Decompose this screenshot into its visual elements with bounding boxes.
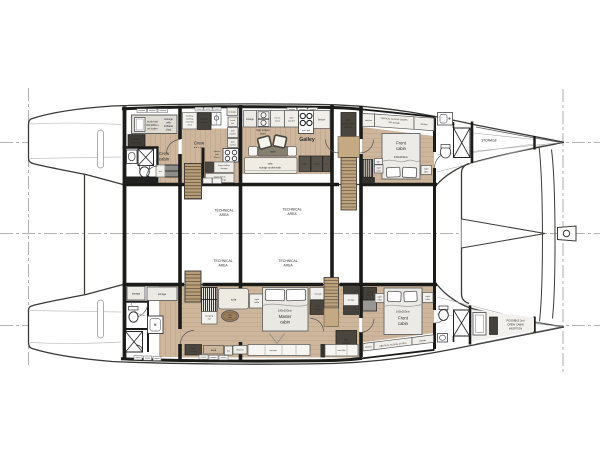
svg-text:AREA: AREA	[287, 212, 297, 216]
svg-text:chair: chair	[166, 128, 172, 132]
svg-text:storage: storage	[138, 180, 146, 183]
svg-text:cabin: cabin	[159, 157, 170, 162]
svg-text:worktop: worktop	[186, 115, 194, 118]
svg-text:storage: storage	[164, 117, 173, 121]
svg-text:shelves: shelves	[344, 127, 353, 129]
svg-text:night: night	[426, 295, 431, 298]
svg-text:sofa 90x: sofa 90x	[337, 350, 346, 352]
svg-text:Master: Master	[279, 314, 292, 319]
svg-text:electric: electric	[214, 150, 221, 153]
svg-text:night: night	[378, 296, 383, 299]
svg-text:bunk bed: bunk bed	[147, 120, 158, 124]
svg-text:storage: storage	[366, 291, 374, 294]
svg-text:night: night	[424, 168, 429, 171]
svg-text:dust: dust	[231, 141, 235, 144]
svg-text:cabin: cabin	[396, 146, 407, 151]
svg-text:4 burn.: 4 burn.	[214, 156, 221, 159]
svg-text:foldable: foldable	[164, 124, 174, 128]
svg-text:Crew: Crew	[159, 151, 170, 156]
svg-text:storage: storage	[348, 299, 356, 302]
svg-text:160x200cm: 160x200cm	[396, 310, 411, 314]
svg-text:Crew: Crew	[194, 141, 205, 146]
svg-text:STORAGE: STORAGE	[481, 139, 497, 143]
svg-text:washer: washer	[229, 133, 236, 136]
svg-text:stor.: stor.	[159, 170, 163, 173]
svg-text:storage: storage	[314, 308, 322, 311]
svg-text:60x190cm: 60x190cm	[131, 143, 142, 145]
svg-text:bar: bar	[227, 350, 230, 353]
svg-text:Galley: Galley	[299, 137, 315, 143]
svg-text:cabin: cabin	[398, 321, 409, 326]
svg-text:cabin: cabin	[280, 320, 291, 325]
svg-text:with: with	[166, 121, 171, 125]
svg-text:storage: storage	[269, 349, 277, 352]
svg-text:160x200cm: 160x200cm	[394, 155, 409, 159]
svg-text:night: night	[377, 167, 382, 170]
svg-text:lockers with: lockers with	[342, 123, 355, 126]
svg-text:storage: storage	[190, 350, 198, 353]
svg-text:hanging: hanging	[205, 316, 214, 318]
svg-text:POSSIBLE 2nd: POSSIBLE 2nd	[507, 319, 525, 323]
svg-text:storage: storage	[314, 293, 322, 296]
svg-text:high: high	[344, 340, 349, 342]
svg-text:table: table	[254, 301, 260, 304]
svg-text:shelves: shelves	[365, 120, 372, 122]
svg-text:bags clothes: bags clothes	[218, 164, 230, 167]
svg-text:store: store	[260, 132, 266, 135]
svg-text:lockers: lockers	[367, 295, 373, 297]
svg-text:Front: Front	[398, 316, 409, 321]
svg-text:wave: wave	[275, 121, 281, 123]
svg-text:machine: machine	[186, 122, 195, 124]
svg-text:freezer: freezer	[318, 119, 325, 122]
svg-text:top load: top load	[200, 118, 209, 121]
svg-text:table: table	[270, 150, 276, 154]
svg-text:light: light	[377, 161, 381, 164]
svg-text:TECHNICAL: TECHNICAL	[278, 259, 297, 263]
svg-text:AREA: AREA	[219, 213, 229, 217]
svg-text:storage underneath: storage underneath	[259, 167, 281, 170]
svg-text:180x200cm: 180x200cm	[278, 309, 293, 313]
svg-text:w/ locker: w/ locker	[147, 127, 157, 131]
svg-text:W/OPTION: W/OPTION	[509, 327, 522, 331]
svg-text:fridge: fridge	[302, 163, 308, 166]
svg-text:storage: storage	[221, 167, 229, 170]
svg-text:lockers: lockers	[315, 305, 323, 308]
svg-text:storage: storage	[158, 293, 167, 296]
svg-text:storage: storage	[246, 118, 254, 121]
svg-text:night: night	[254, 298, 259, 301]
svg-text:storage: storage	[132, 293, 141, 296]
svg-text:washer: washer	[201, 121, 208, 124]
svg-text:TECHNICAL: TECHNICAL	[213, 259, 232, 263]
svg-text:freezer: freezer	[313, 163, 320, 166]
svg-text:AREA: AREA	[283, 264, 293, 268]
svg-text:high: high	[346, 120, 351, 122]
svg-text:oven grill: oven grill	[302, 129, 311, 132]
svg-text:Front: Front	[396, 141, 407, 146]
svg-text:micro-: micro-	[274, 117, 280, 120]
svg-text:desk: desk	[211, 349, 217, 352]
svg-text:CREW CABIN: CREW CABIN	[507, 323, 524, 327]
svg-text:TECHNICAL: TECHNICAL	[282, 208, 301, 212]
svg-text:washer: washer	[288, 120, 295, 123]
svg-text:washer: washer	[229, 144, 236, 147]
svg-text:80x190cm: 80x190cm	[147, 123, 159, 127]
svg-text:lockers: lockers	[133, 138, 141, 141]
svg-text:AREA: AREA	[218, 264, 228, 268]
svg-text:sofa: sofa	[231, 298, 237, 302]
svg-text:TECHNICAL: TECHNICAL	[214, 209, 233, 213]
svg-text:rail: rail	[208, 318, 211, 321]
svg-text:table: table	[228, 316, 232, 319]
svg-text:storage: storage	[229, 111, 237, 114]
svg-text:sofa: sofa	[268, 163, 273, 166]
svg-text:working: working	[186, 118, 194, 121]
svg-text:drawers: drawers	[236, 349, 243, 352]
